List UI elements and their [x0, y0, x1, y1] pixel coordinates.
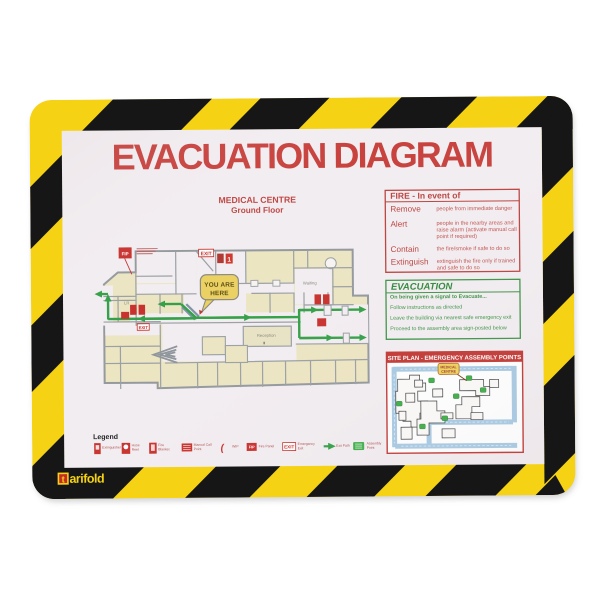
svg-text:arifold: arifold	[69, 472, 104, 486]
